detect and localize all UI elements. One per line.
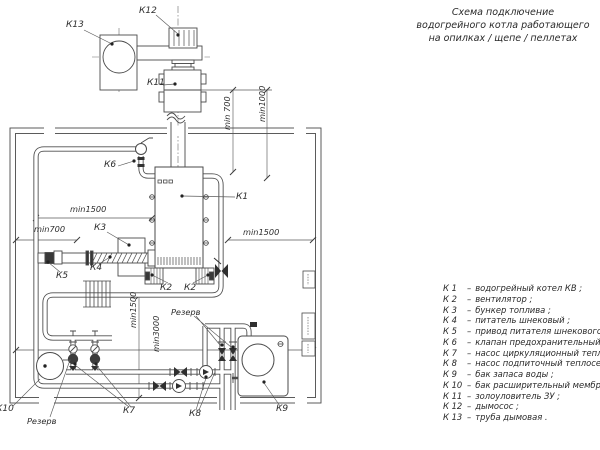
title-block: Схема подключение водогрейного котла раб… [408,6,598,45]
ash-collector-k11 [164,70,201,112]
dim-min1000: min1000 [257,86,267,122]
chimney-pipe-circle [103,41,135,73]
label-reserve-top: Резерв [171,307,200,317]
tank-inlet-valve [250,322,257,327]
legend-item: К 11–золоуловитель ЗУ ; [443,391,600,402]
dim-min1500-left: min1500 [70,204,106,214]
label-k11: К11 [147,78,165,88]
legend-item: К 1–водогрейный котел КВ ; [443,283,600,294]
label-k1: К1 [236,192,248,202]
legend-item: К 5–привод питателя шнекового ; [443,326,600,337]
pump-k7-b [90,354,100,364]
dim-min700-left: min700 [34,224,65,234]
screw-channel-k4 [62,253,148,263]
legend-item: К 8–насос подпиточный теплосети ; [443,358,600,369]
label-k2-left: К2 [160,283,172,293]
label-reserve-bottom: Резерв [27,416,56,426]
water-tank-k9 [232,336,288,396]
label-k3: К3 [94,223,106,233]
legend-item: К 3–бункер топлива ; [443,305,600,316]
label-k13: К13 [66,20,84,30]
legend-item: К 4–питатель шнековый ; [443,315,600,326]
dim-min700-top: min 700 [222,96,232,130]
legend-item: К 6–клапан предохранительный ; [443,337,600,348]
dim-min1500-right: min1500 [243,227,279,237]
label-k6: К6 [104,160,116,170]
dim-min3000: min3000 [151,316,161,352]
label-k2-right: К2 [184,283,196,293]
grate-hatch [158,257,200,265]
label-k8: К8 [189,409,201,419]
boiler-k1 [149,167,209,268]
label-k5: К5 [56,271,68,281]
wall-panels [302,271,315,356]
expansion-tank-k10 [37,353,72,380]
smoke-exhauster-k12 [169,28,197,48]
legend-item: К 12–дымосос ; [443,401,600,412]
pipe-break-symbol [167,113,185,123]
legend-item: К 13–труба дымовая . [443,412,600,423]
chimney-assembly [100,28,206,167]
legend-item: К 9–бак запаса воды ; [443,369,600,380]
safety-valve-k6 [136,138,154,167]
title-line-3: на опилках / щепе / пеллетах [408,32,598,45]
boiler-connection-scheme: Схема подключение водогрейного котла раб… [0,0,600,450]
label-k7: К7 [123,406,135,416]
label-k10: К10 [0,404,14,414]
label-k12: К12 [139,6,157,16]
legend-item: К 7–насос циркуляционный теплосети ; [443,348,600,359]
screw-drive-k5 [38,251,62,264]
dim-min1500-vertical: min1500 [128,292,138,328]
label-k4: К4 [90,263,102,273]
legend: К 1–водогрейный котел КВ ; К 2–вентилято… [443,283,600,423]
title-line-2: водогрейного котла работающего [408,19,598,32]
legend-item: К 2–вентилятор ; [443,294,600,305]
title-line-1: Схема подключение [408,6,598,19]
label-k9: К9 [276,404,288,414]
fans-k2 [145,268,214,284]
legend-item: К 10–бак расширительный мембранный ; [443,380,600,391]
